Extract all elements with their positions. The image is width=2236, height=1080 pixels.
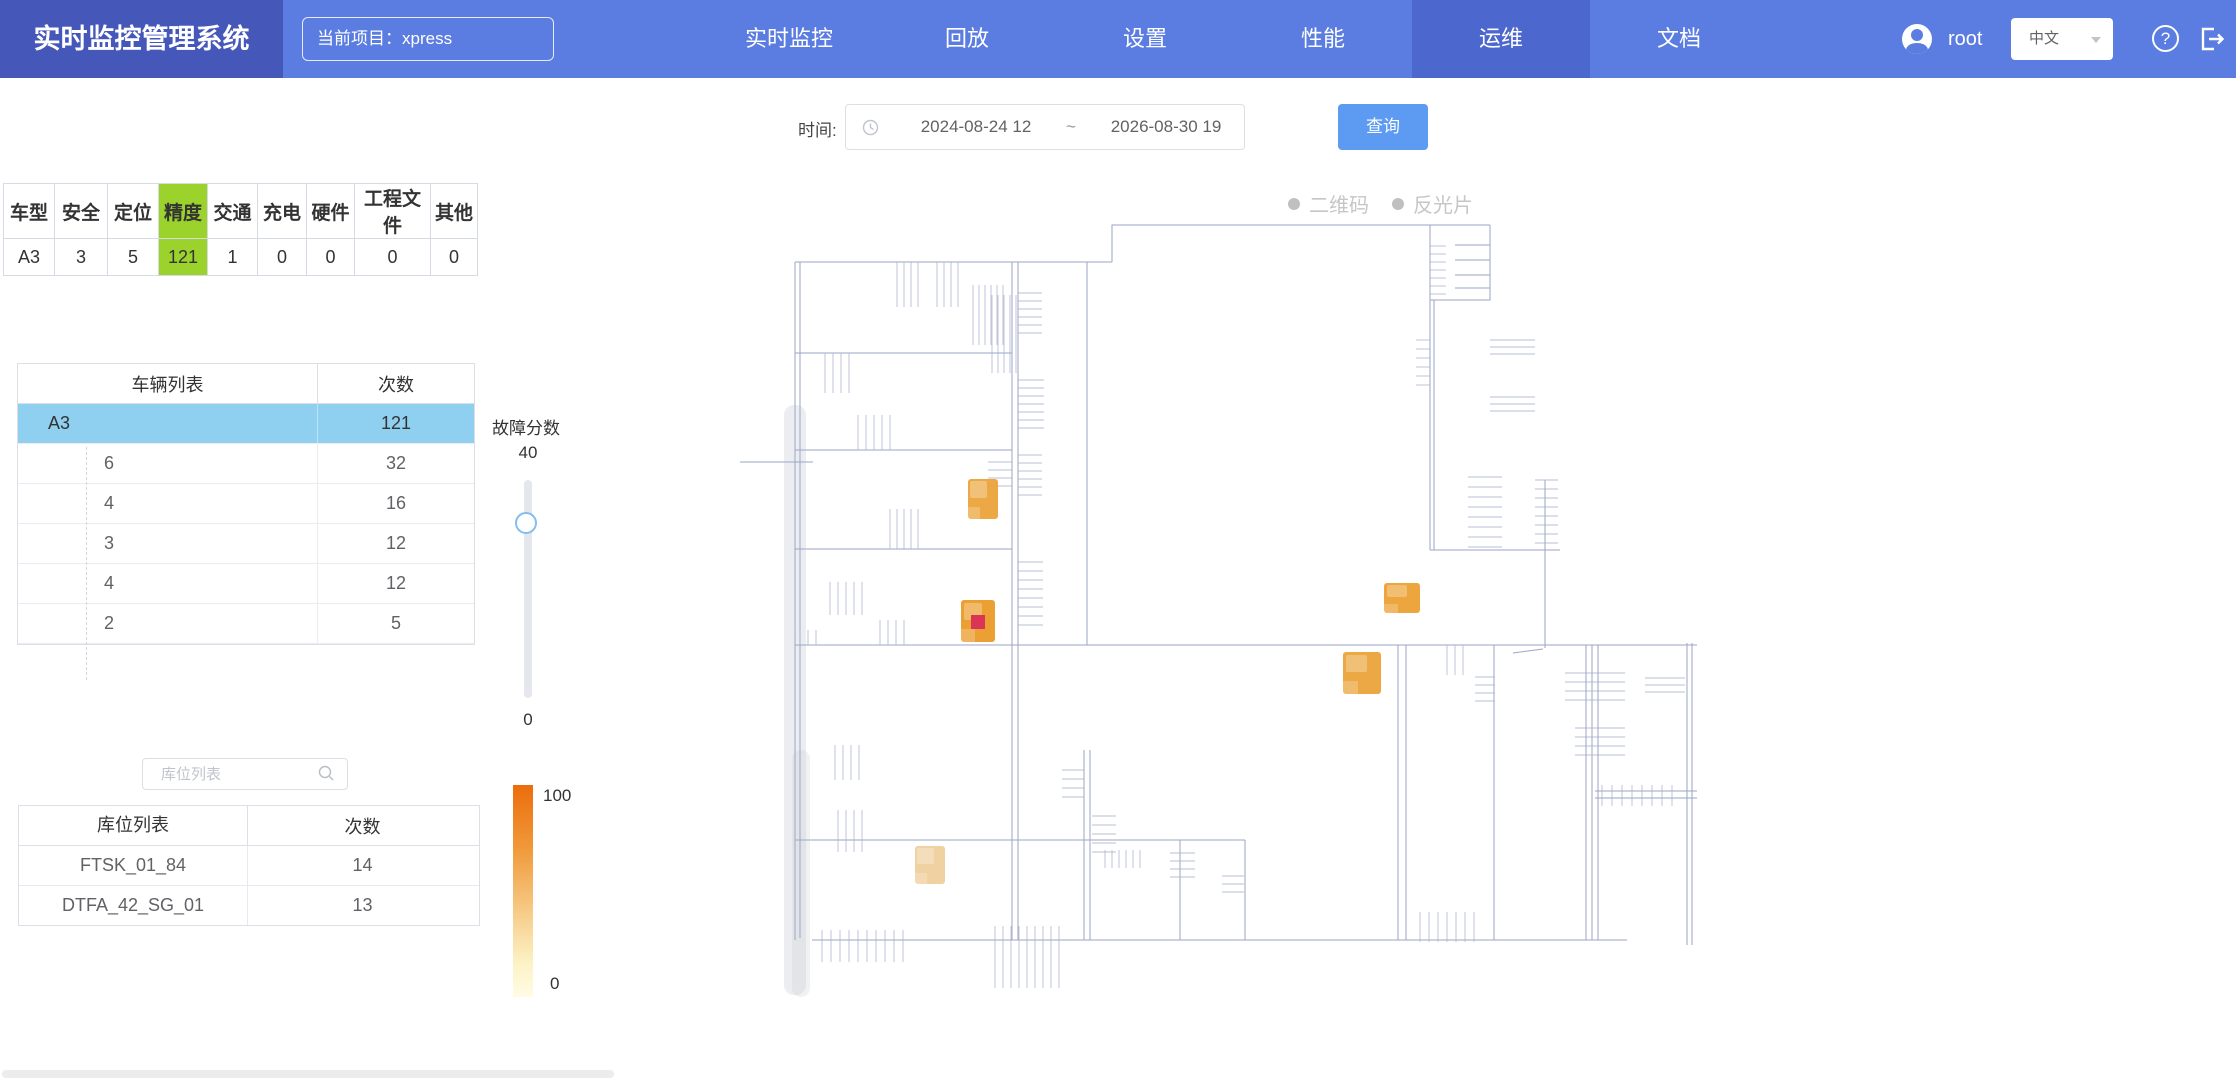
tab-operations[interactable]: 运维 (1412, 0, 1590, 78)
vehicle-row-selected[interactable]: A3 121 (18, 404, 474, 444)
tab-performance[interactable]: 性能 (1234, 0, 1412, 78)
language-select[interactable]: 中文 (2011, 18, 2113, 60)
floorplan-svg (740, 200, 1710, 1010)
cat-value-traffic: 1 (208, 239, 258, 276)
app-header: 实时监控管理系统 当前项目：xpress 实时监控 回放 设置 性能 运维 文档… (0, 0, 2236, 78)
fault-score-slider-handle[interactable] (515, 512, 537, 534)
clock-icon (862, 119, 879, 141)
cat-value-other: 0 (431, 239, 478, 276)
storage-table-header: 库位列表 次数 (19, 806, 479, 846)
fault-category-table: 车型 安全 定位 精度 交通 充电 硬件 工程文件 其他 A3 3 5 121 … (3, 183, 478, 276)
cat-header-hardware[interactable]: 硬件 (307, 184, 355, 239)
cat-value-engineering-file: 0 (355, 239, 431, 276)
cat-header-traffic[interactable]: 交通 (208, 184, 258, 239)
tab-docs[interactable]: 文档 (1590, 0, 1768, 78)
heat-spot (915, 846, 945, 884)
count-col-header: 次数 (318, 371, 474, 397)
storage-col-header: 库位列表 (19, 806, 248, 845)
tree-indent-guide (86, 447, 87, 680)
app-title: 实时监控管理系统 (0, 0, 283, 78)
heat-spot (1343, 652, 1381, 694)
help-icon[interactable]: ? (2152, 25, 2179, 52)
storage-list-table: 库位列表 次数 FTSK_01_84 14 DTFA_42_SG_01 13 (18, 805, 480, 926)
query-button[interactable]: 查询 (1338, 104, 1428, 150)
time-end-value[interactable]: 2026-08-30 19 (1091, 105, 1241, 149)
chevron-down-icon (2091, 37, 2101, 43)
cat-header-charging[interactable]: 充电 (258, 184, 307, 239)
time-label: 时间: (798, 116, 837, 141)
count-col-header: 次数 (248, 813, 477, 839)
username: root (1948, 0, 1982, 78)
tab-realtime-monitor[interactable]: 实时监控 (700, 0, 878, 78)
fault-score-min: 0 (503, 710, 553, 730)
time-separator: ~ (1056, 105, 1086, 149)
language-value: 中文 (2029, 30, 2059, 47)
cat-value-vehicle-type: A3 (4, 239, 55, 276)
horizontal-scrollbar[interactable] (2, 1070, 614, 1078)
time-start-value[interactable]: 2024-08-24 12 (901, 105, 1051, 149)
cat-value-precision: 121 (159, 239, 208, 276)
storage-row[interactable]: FTSK_01_84 14 (19, 846, 479, 886)
cat-header-positioning[interactable]: 定位 (108, 184, 159, 239)
cat-value-hardware: 0 (307, 239, 355, 276)
cat-value-charging: 0 (258, 239, 307, 276)
cat-header-precision[interactable]: 精度 (159, 184, 208, 239)
tab-settings[interactable]: 设置 (1056, 0, 1234, 78)
heat-spot (968, 479, 998, 519)
cat-header-safety[interactable]: 安全 (55, 184, 108, 239)
user-avatar-icon[interactable] (1902, 24, 1932, 54)
storage-row[interactable]: DTFA_42_SG_01 13 (19, 886, 479, 925)
time-range-input[interactable]: 2024-08-24 12 ~ 2026-08-30 19 (845, 104, 1245, 150)
heat-spot (961, 600, 995, 642)
heat-spot (1384, 583, 1420, 613)
logout-icon[interactable] (2198, 25, 2226, 53)
search-icon (318, 765, 335, 787)
gradient-max-label: 100 (543, 786, 571, 806)
map-area[interactable] (740, 200, 1710, 1010)
vehicle-table-header: 车辆列表 次数 (18, 364, 474, 404)
fault-score-label: 故障分数 (492, 414, 560, 439)
app-window: 实时监控管理系统 当前项目：xpress 实时监控 回放 设置 性能 运维 文档… (0, 0, 2236, 1080)
main-nav: 实时监控 回放 设置 性能 运维 文档 (700, 0, 1768, 78)
cat-value-safety: 3 (55, 239, 108, 276)
tab-playback[interactable]: 回放 (878, 0, 1056, 78)
heat-gradient-legend (513, 785, 533, 997)
vehicle-col-header: 车辆列表 (18, 364, 318, 403)
vehicle-list-table: 车辆列表 次数 A3 121 6 32 4 16 3 12 4 12 2 5 (17, 363, 475, 645)
current-project-label: 当前项目：xpress (317, 29, 452, 48)
cat-header-vehicle-type[interactable]: 车型 (4, 184, 55, 239)
fault-score-max: 40 (503, 443, 553, 463)
cat-header-engineering-file[interactable]: 工程文件 (355, 184, 431, 239)
cat-header-other[interactable]: 其他 (431, 184, 478, 239)
current-project-box: 当前项目：xpress (302, 17, 554, 61)
gradient-min-label: 0 (550, 974, 559, 994)
cat-value-positioning: 5 (108, 239, 159, 276)
